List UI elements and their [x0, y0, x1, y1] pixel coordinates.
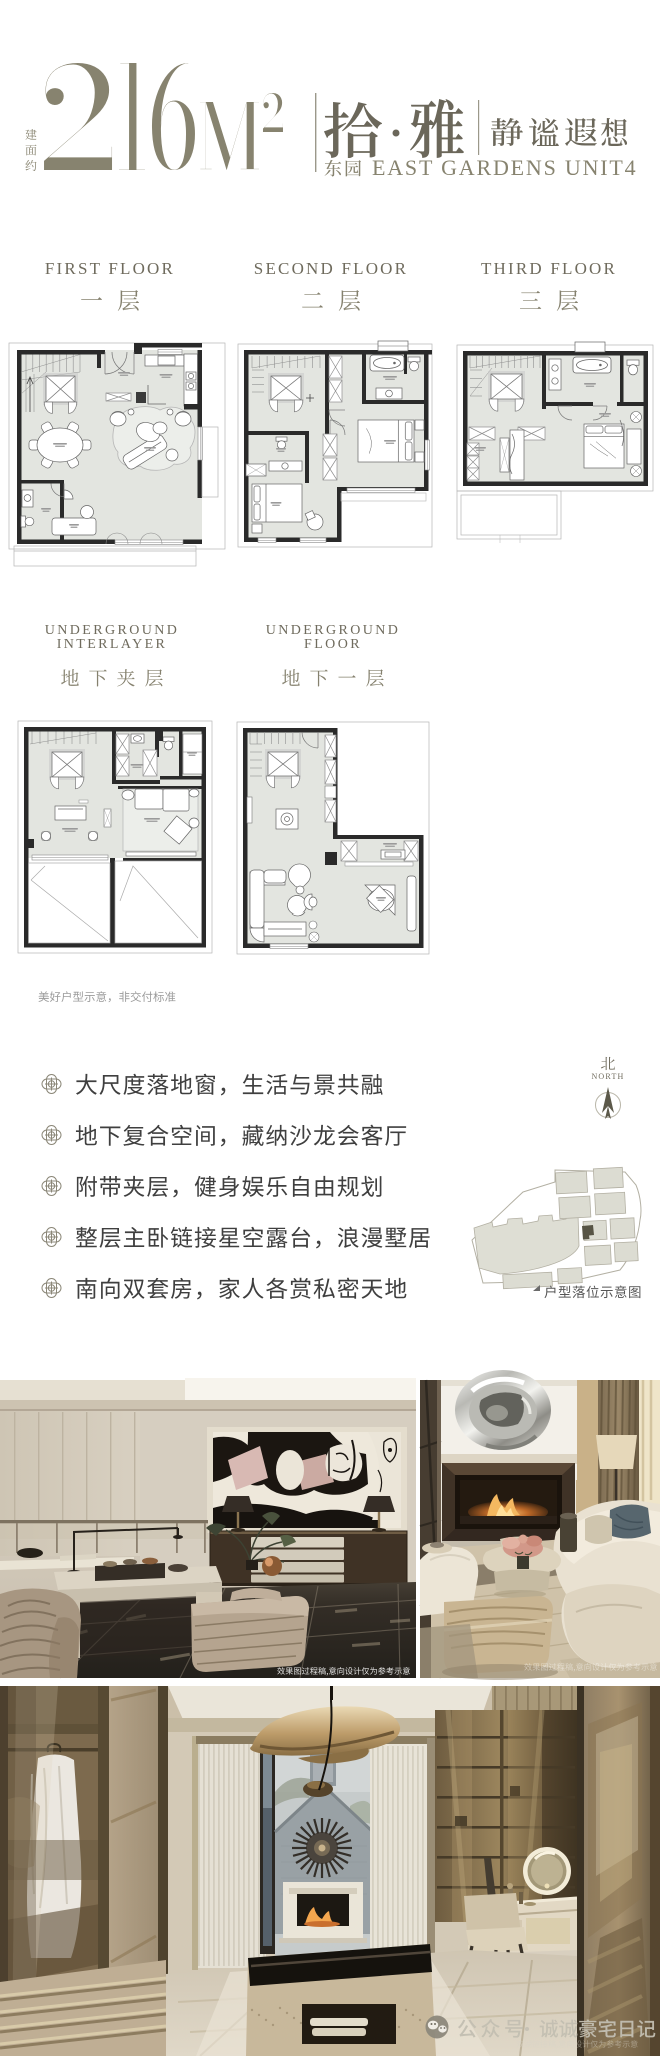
- svg-text:UNDERGROUND: UNDERGROUND: [266, 623, 401, 638]
- svg-text:THIRD FLOOR: THIRD FLOOR: [481, 259, 617, 278]
- svg-text:FLOOR: FLOOR: [304, 637, 362, 652]
- svg-text:FIRST FLOOR: FIRST FLOOR: [45, 259, 175, 278]
- svg-text:EAST GARDENS UNIT4: EAST GARDENS UNIT4: [372, 155, 637, 180]
- svg-text:SECOND FLOOR: SECOND FLOOR: [254, 259, 408, 278]
- svg-text:UNDERGROUND: UNDERGROUND: [45, 623, 180, 638]
- svg-text:INTERLAYER: INTERLAYER: [57, 637, 168, 652]
- svg-text:NORTH: NORTH: [591, 1072, 624, 1081]
